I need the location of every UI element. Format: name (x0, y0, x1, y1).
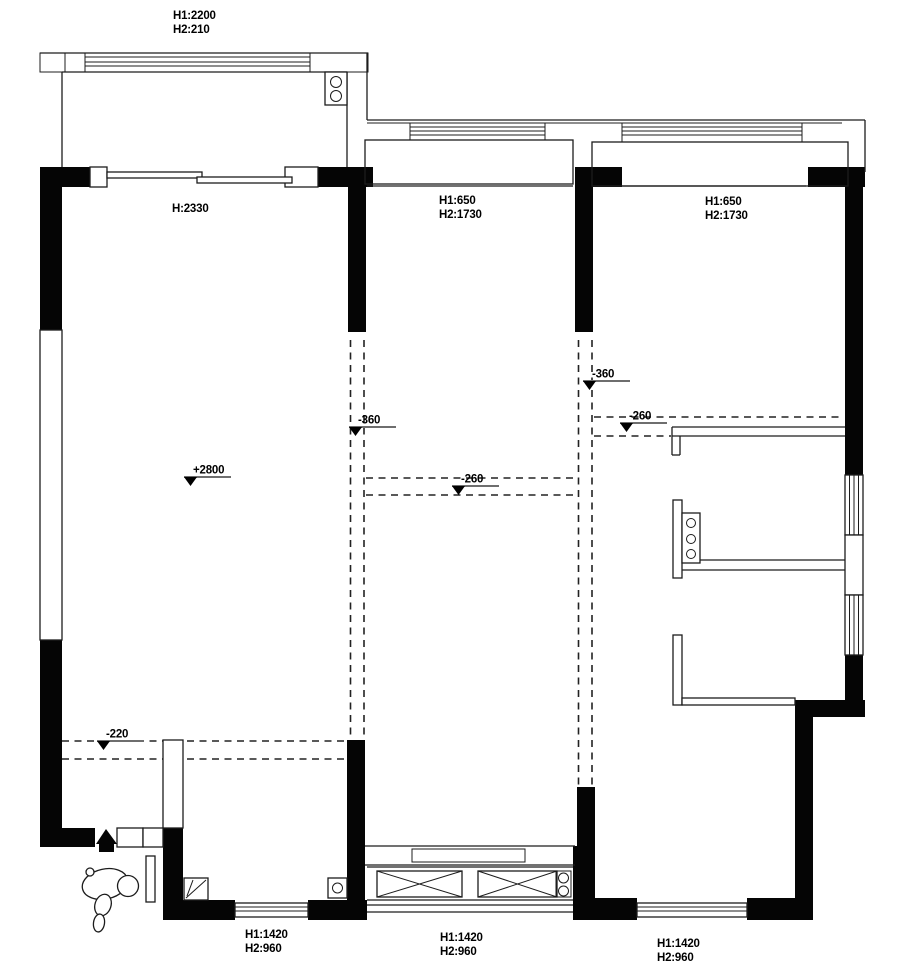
bottom-left-window (235, 903, 308, 917)
mid-bay-window (365, 123, 573, 186)
balcony-door-label: H:2330 (172, 203, 209, 215)
level-triangle-icon (184, 477, 197, 486)
entry-arrow-icon (96, 829, 117, 852)
left-wall-window (40, 330, 62, 640)
level-marker: -220 (97, 729, 144, 751)
bottom-left-window-label: H1:1420 (245, 929, 288, 941)
right-bay-window-label: H1:650 (705, 196, 742, 208)
pipe-fixture-icon (556, 871, 571, 897)
level-triangle-icon (583, 381, 596, 390)
level-triangle-icon (97, 741, 110, 750)
floor-plan-canvas: H1:2200 H2:210 H:2330 H1:650 H2:1730 H1:… (0, 0, 897, 974)
level-marker: -260 (452, 474, 499, 496)
cabinet-knobs-icon (682, 513, 700, 563)
mid-bay-window-label2: H2:1730 (439, 209, 482, 221)
door-leaf (146, 856, 155, 902)
ac-unit-box-icon (377, 871, 462, 897)
level-marker: -360 (583, 369, 630, 391)
right-bay-window-label2: H2:1730 (705, 210, 748, 222)
level-markers: +2800-360-360-260-260-220 (97, 369, 667, 751)
bottom-mid-window-label: H1:1420 (440, 932, 483, 944)
level-value: -260 (629, 411, 651, 423)
service-balcony (365, 846, 575, 912)
level-marker: +2800 (184, 465, 231, 487)
level-marker: -260 (620, 411, 667, 433)
bottom-right-window-label2: H2:960 (657, 952, 694, 964)
sink-fixture-icon (184, 878, 208, 900)
level-value: -360 (358, 415, 380, 427)
mid-bay-window-label: H1:650 (439, 195, 476, 207)
floor-plan: H1:2200 H2:210 H:2330 H1:650 H2:1730 H1:… (0, 0, 897, 974)
level-value: -220 (106, 729, 128, 741)
level-marker: -360 (349, 415, 396, 437)
floor-drain-icon (328, 878, 347, 898)
bottom-right-window (637, 903, 747, 917)
balcony-sliding-door (90, 167, 318, 187)
bedroom-furniture (672, 427, 845, 705)
level-triangle-icon (620, 423, 633, 432)
bottom-mid-window-label2: H2:960 (440, 946, 477, 958)
balcony-top-window-label2: H2:210 (173, 24, 210, 36)
water-heater-icon (325, 72, 347, 105)
dashed-ceiling-lines (62, 340, 843, 785)
bottom-right-window-label: H1:1420 (657, 938, 700, 950)
level-value: -360 (592, 369, 614, 381)
balcony-top (40, 53, 368, 167)
level-value: -260 (461, 474, 483, 486)
right-wall-windows (845, 475, 863, 655)
level-value: +2800 (193, 465, 224, 477)
person-icon (79, 865, 138, 933)
balcony-window (85, 53, 310, 72)
bottom-left-window-label2: H2:960 (245, 943, 282, 955)
ac-unit-box-icon (478, 871, 557, 897)
balcony-top-window-label: H1:2200 (173, 10, 216, 22)
top-outer-wall (367, 120, 865, 172)
level-triangle-icon (452, 486, 465, 495)
